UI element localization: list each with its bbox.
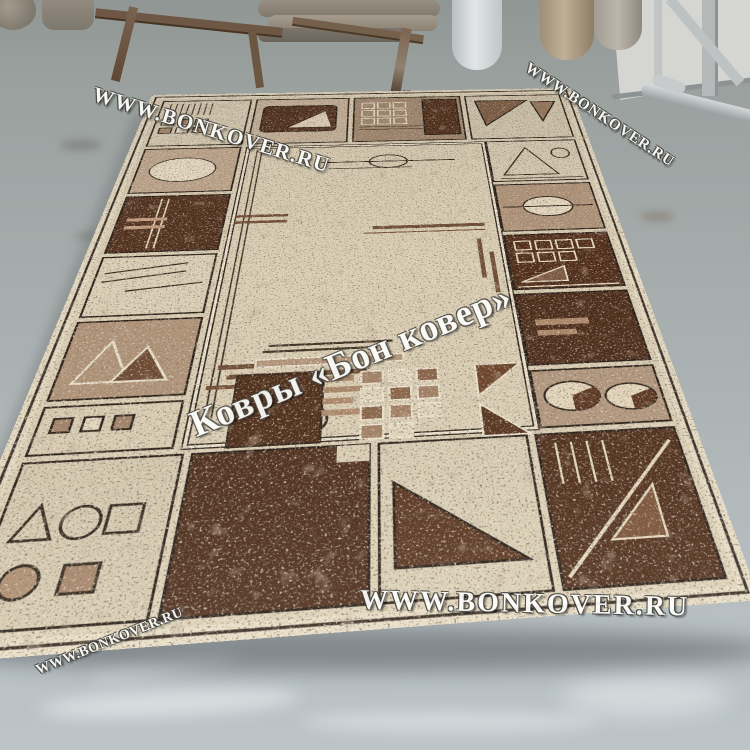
gray-roll [594, 0, 642, 50]
floor-paint-streak [560, 676, 730, 716]
scene: WWW.BONKOVER.RU WWW.BONKOVER.RU Ковры «Б… [0, 0, 750, 750]
tan-roll [540, 0, 594, 60]
carpet-roll-end [0, 0, 36, 30]
floor-paint-streak [39, 683, 300, 723]
carpet-roll-end [42, 0, 94, 30]
floor-smudge [60, 140, 102, 150]
floor-smudge [640, 212, 674, 221]
white-roll [452, 0, 502, 70]
floor-paint-streak [300, 712, 600, 732]
